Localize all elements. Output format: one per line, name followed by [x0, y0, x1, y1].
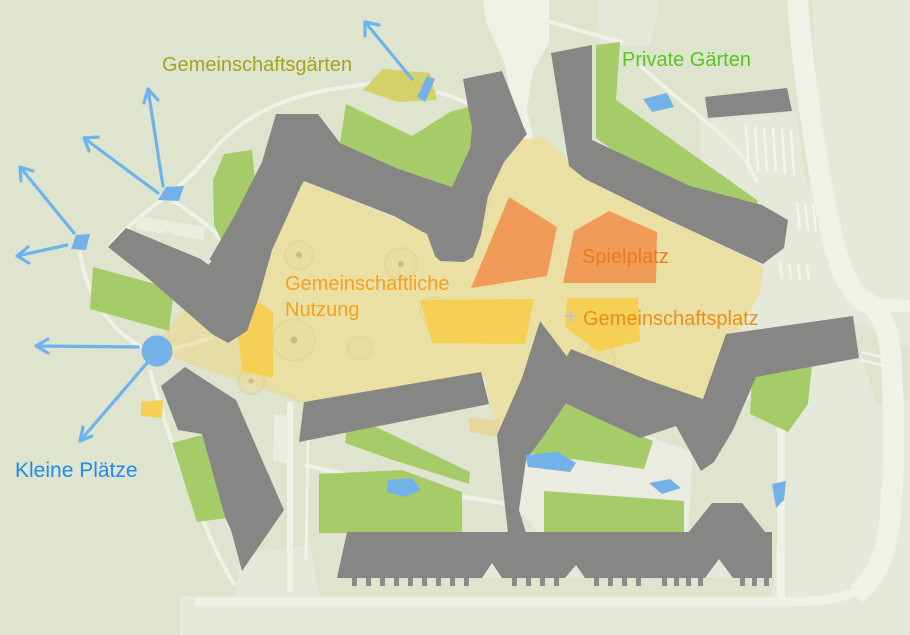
svg-text:Kleine Plätze: Kleine Plätze: [15, 459, 138, 482]
svg-text:Spielplatz: Spielplatz: [582, 246, 669, 268]
svg-text:Nutzung: Nutzung: [285, 299, 360, 321]
svg-text:Private Gärten: Private Gärten: [622, 49, 751, 71]
svg-text:Gemeinschaftliche: Gemeinschaftliche: [285, 273, 450, 295]
svg-text:Gemeinschaftsgärten: Gemeinschaftsgärten: [162, 54, 352, 76]
svg-text:Gemeinschaftsplatz: Gemeinschaftsplatz: [583, 308, 759, 330]
